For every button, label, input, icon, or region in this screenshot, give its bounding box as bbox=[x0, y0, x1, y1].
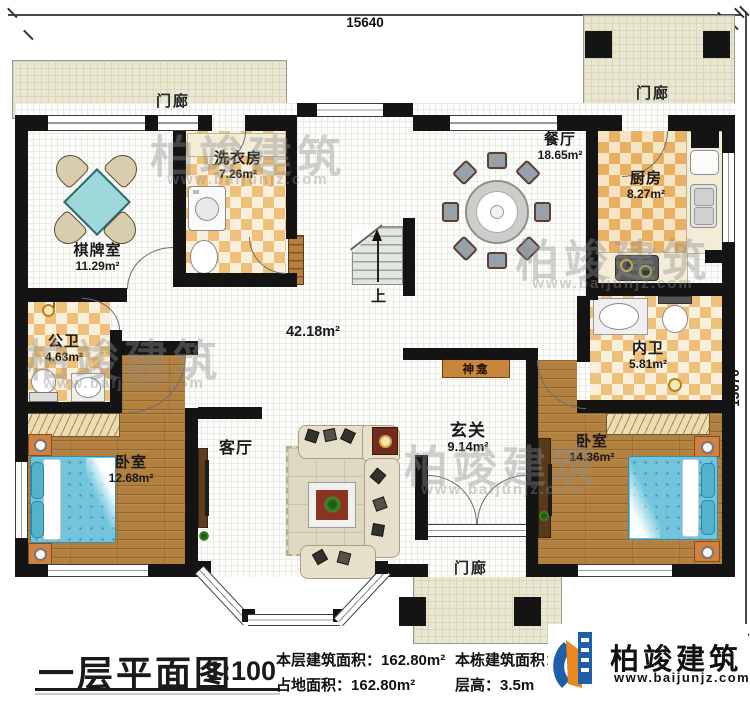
wall bbox=[672, 564, 735, 577]
plant bbox=[539, 511, 549, 521]
room-name: 洗衣房 bbox=[198, 151, 278, 168]
pillow bbox=[323, 428, 337, 442]
wall bbox=[526, 360, 538, 577]
total-area-label: 本栋建筑面积： bbox=[455, 652, 560, 669]
wall bbox=[122, 341, 198, 355]
title-underline-shadow bbox=[35, 693, 280, 695]
room-area: 7.26m² bbox=[198, 168, 278, 181]
burner bbox=[620, 259, 633, 272]
window bbox=[158, 115, 198, 131]
washer-dial bbox=[193, 190, 199, 194]
room-label-kitchen: 厨房 8.27m² bbox=[610, 171, 682, 201]
nightstand bbox=[694, 541, 720, 562]
room-name: 棋牌室 bbox=[50, 243, 145, 260]
wall bbox=[403, 348, 538, 360]
room-area: 4.63m² bbox=[32, 351, 96, 364]
bed-sheet bbox=[682, 459, 699, 537]
washer-drum bbox=[195, 197, 219, 221]
window bbox=[15, 462, 28, 538]
wall bbox=[598, 115, 622, 131]
burner bbox=[639, 265, 652, 278]
room-name: 厨房 bbox=[610, 171, 682, 188]
room-name: 卧室 bbox=[97, 455, 165, 472]
side-table bbox=[372, 427, 398, 455]
nightstand bbox=[28, 434, 52, 456]
porch-column bbox=[703, 31, 730, 58]
sink-basin bbox=[694, 207, 714, 225]
wall bbox=[15, 402, 122, 413]
top-dimension-value: 15640 bbox=[330, 15, 400, 30]
right-dimension-line bbox=[745, 12, 747, 634]
chair bbox=[487, 152, 507, 169]
window bbox=[578, 564, 672, 577]
shrine: 神龛 bbox=[442, 359, 510, 378]
logo-building-icon bbox=[548, 626, 614, 696]
porch-label: 门廊 bbox=[446, 557, 496, 578]
chair bbox=[534, 202, 551, 222]
porch-label: 门廊 bbox=[148, 90, 198, 111]
porch-column bbox=[514, 597, 541, 626]
wall bbox=[286, 115, 297, 239]
kitchen-column bbox=[705, 250, 723, 263]
room-area: 11.29m² bbox=[50, 260, 145, 273]
height-label: 层高： bbox=[455, 677, 500, 694]
company-logo: 柏竣建筑 www.baijunjz.com bbox=[548, 624, 748, 700]
plant bbox=[324, 496, 341, 513]
tv bbox=[548, 464, 552, 516]
fridge bbox=[690, 150, 719, 175]
wall bbox=[383, 103, 413, 117]
room-label-bedroom-left: 卧室 12.68m² bbox=[97, 455, 165, 485]
room-name: 卧室 bbox=[556, 434, 628, 451]
porch-column bbox=[399, 597, 426, 626]
headboard-cushion bbox=[701, 463, 715, 498]
area-value: 42.18m² bbox=[280, 324, 346, 340]
room-label-dining: 餐厅 18.65m² bbox=[524, 132, 596, 162]
tv bbox=[205, 460, 209, 516]
wall bbox=[185, 408, 198, 566]
floor-plan-page: 15640 13670 bbox=[0, 0, 750, 704]
room-label-public-bath: 公卫 4.63m² bbox=[32, 334, 96, 364]
plant bbox=[199, 531, 209, 541]
bay-window bbox=[248, 614, 340, 626]
window bbox=[450, 115, 557, 131]
wall bbox=[198, 115, 212, 131]
chair bbox=[487, 252, 507, 269]
headboard-cushion bbox=[701, 500, 715, 535]
window bbox=[48, 564, 148, 577]
floor-area-row: 本层建筑面积：162.80m² bbox=[276, 649, 445, 670]
room-label-laundry: 洗衣房 7.26m² bbox=[198, 151, 278, 181]
sink-basin bbox=[694, 188, 714, 206]
laundry-sink bbox=[190, 240, 218, 274]
foyer-threshold bbox=[428, 524, 526, 537]
kitchen-sink bbox=[690, 184, 717, 228]
wall bbox=[173, 273, 297, 287]
room-area: 14.36m² bbox=[556, 451, 628, 464]
wall bbox=[173, 131, 186, 275]
wall bbox=[577, 400, 725, 413]
nightstand bbox=[694, 436, 720, 457]
bath-sink bbox=[75, 377, 101, 398]
land-area-label: 占地面积： bbox=[276, 677, 351, 694]
floor-area-value: 162.80m² bbox=[381, 652, 445, 669]
washing-machine bbox=[188, 186, 226, 231]
room-name: 餐厅 bbox=[524, 132, 596, 149]
pillow bbox=[371, 523, 385, 537]
stairs-up-label: 上 bbox=[366, 289, 392, 306]
bath-sink bbox=[599, 303, 639, 330]
wall bbox=[145, 115, 158, 131]
bed-sheet-fold bbox=[630, 458, 660, 538]
window bbox=[48, 115, 145, 131]
height-value: 3.5m bbox=[500, 677, 534, 694]
chair bbox=[442, 202, 459, 222]
wall bbox=[297, 103, 317, 117]
logo-url: www.baijunjz.com bbox=[614, 670, 750, 685]
wall bbox=[586, 283, 725, 296]
floor-area-label: 本层建筑面积： bbox=[276, 652, 381, 669]
toilet bbox=[662, 305, 688, 333]
headboard-cushion bbox=[31, 501, 44, 538]
storey-height-row: 层高：3.5m bbox=[455, 674, 534, 695]
wall bbox=[413, 115, 450, 131]
dimension-tick bbox=[7, 8, 17, 18]
room-area: 5.81m² bbox=[616, 358, 680, 371]
corner-tick bbox=[23, 30, 33, 40]
kitchen-column bbox=[691, 131, 719, 148]
porch-column bbox=[585, 31, 612, 58]
up-label: 上 bbox=[366, 289, 392, 306]
hall-area-label: 42.18m² bbox=[280, 324, 346, 340]
land-area-value: 162.80m² bbox=[351, 677, 415, 694]
wall bbox=[403, 218, 415, 296]
room-label-living: 客厅 bbox=[210, 440, 262, 458]
wall bbox=[577, 296, 590, 362]
room-area: 8.27m² bbox=[610, 188, 682, 201]
room-name: 客厅 bbox=[210, 440, 262, 458]
toilet-tank bbox=[658, 296, 692, 304]
shrine-label: 神龛 bbox=[463, 364, 490, 376]
toilet bbox=[31, 369, 56, 394]
room-area: 9.14m² bbox=[436, 440, 500, 455]
room-area: 18.65m² bbox=[524, 149, 596, 162]
room-name: 内卫 bbox=[616, 341, 680, 358]
land-area-row: 占地面积：162.80m² bbox=[276, 674, 415, 695]
room-label-bedroom-right: 卧室 14.36m² bbox=[556, 434, 628, 464]
porch-label: 门廊 bbox=[628, 82, 678, 103]
nightstand bbox=[28, 543, 52, 565]
stair-arrow-head bbox=[372, 229, 382, 241]
dining-table bbox=[465, 180, 529, 244]
bed-sheet bbox=[43, 459, 61, 540]
room-label-foyer: 玄关 9.14m² bbox=[436, 421, 500, 455]
wall bbox=[15, 564, 48, 577]
dining-table-center bbox=[490, 205, 504, 219]
floor-drain-icon bbox=[668, 378, 682, 392]
window bbox=[317, 103, 383, 117]
stair-arrow-line bbox=[377, 240, 379, 282]
toilet-tank bbox=[29, 392, 58, 402]
wall bbox=[110, 330, 122, 403]
lamp bbox=[379, 435, 392, 448]
window bbox=[722, 153, 735, 242]
wall bbox=[415, 455, 428, 540]
room-area: 12.68m² bbox=[97, 472, 165, 485]
headboard-cushion bbox=[31, 462, 44, 499]
wardrobe bbox=[606, 413, 710, 435]
bay-post bbox=[375, 561, 388, 574]
wall bbox=[198, 407, 262, 419]
room-label-master-bath: 内卫 5.81m² bbox=[616, 341, 680, 371]
title-underline bbox=[35, 688, 280, 691]
room-label-chess: 棋牌室 11.29m² bbox=[50, 243, 145, 273]
room-name: 公卫 bbox=[32, 334, 96, 351]
wall bbox=[15, 288, 127, 302]
plan-scale: 1:100 bbox=[207, 656, 276, 687]
room-name: 玄关 bbox=[436, 421, 500, 440]
cooktop bbox=[615, 255, 659, 281]
wall bbox=[526, 564, 578, 577]
